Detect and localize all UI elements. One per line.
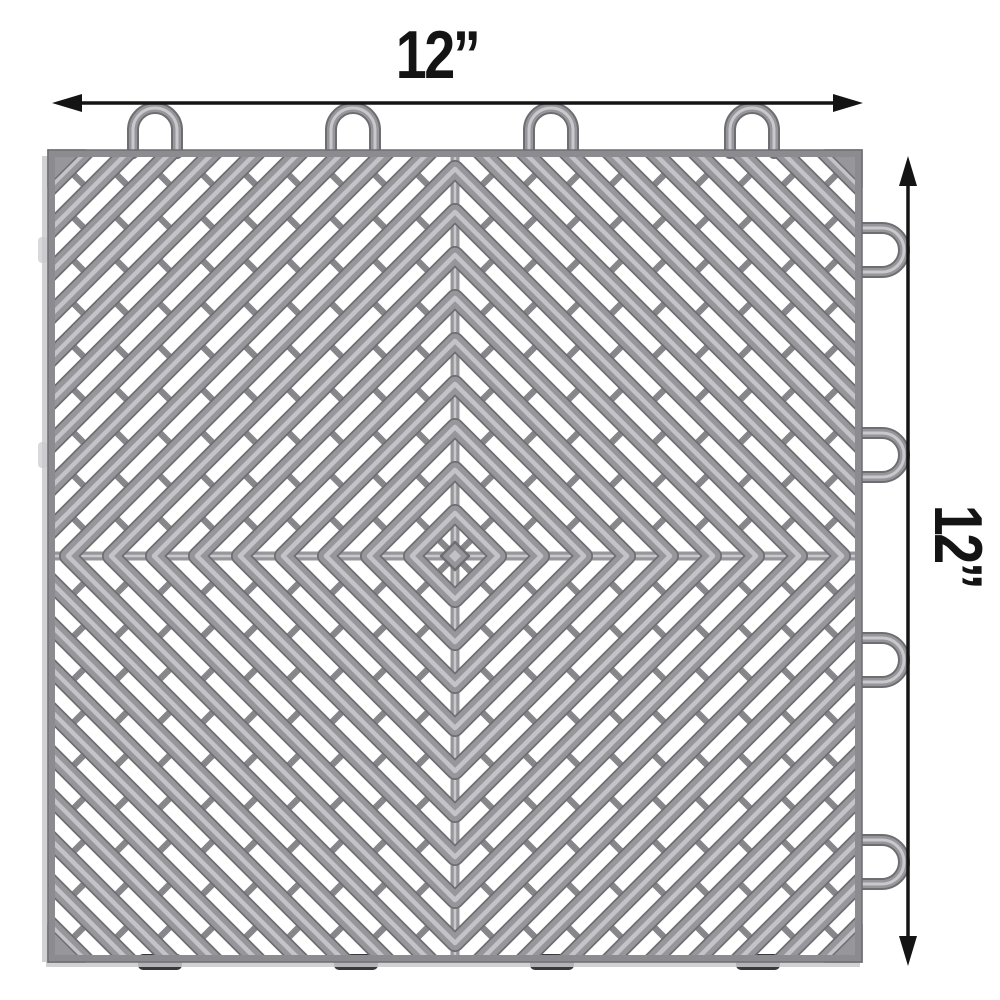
product-dimension-diagram: 12” 12” xyxy=(0,0,1000,1000)
height-dimension-label: 12” xyxy=(924,505,992,588)
interlock-loops-right xyxy=(859,228,904,884)
width-dimension-label: 12” xyxy=(396,21,479,89)
floor-tile-illustration xyxy=(0,0,1000,1000)
interlock-loops-top xyxy=(133,108,774,153)
